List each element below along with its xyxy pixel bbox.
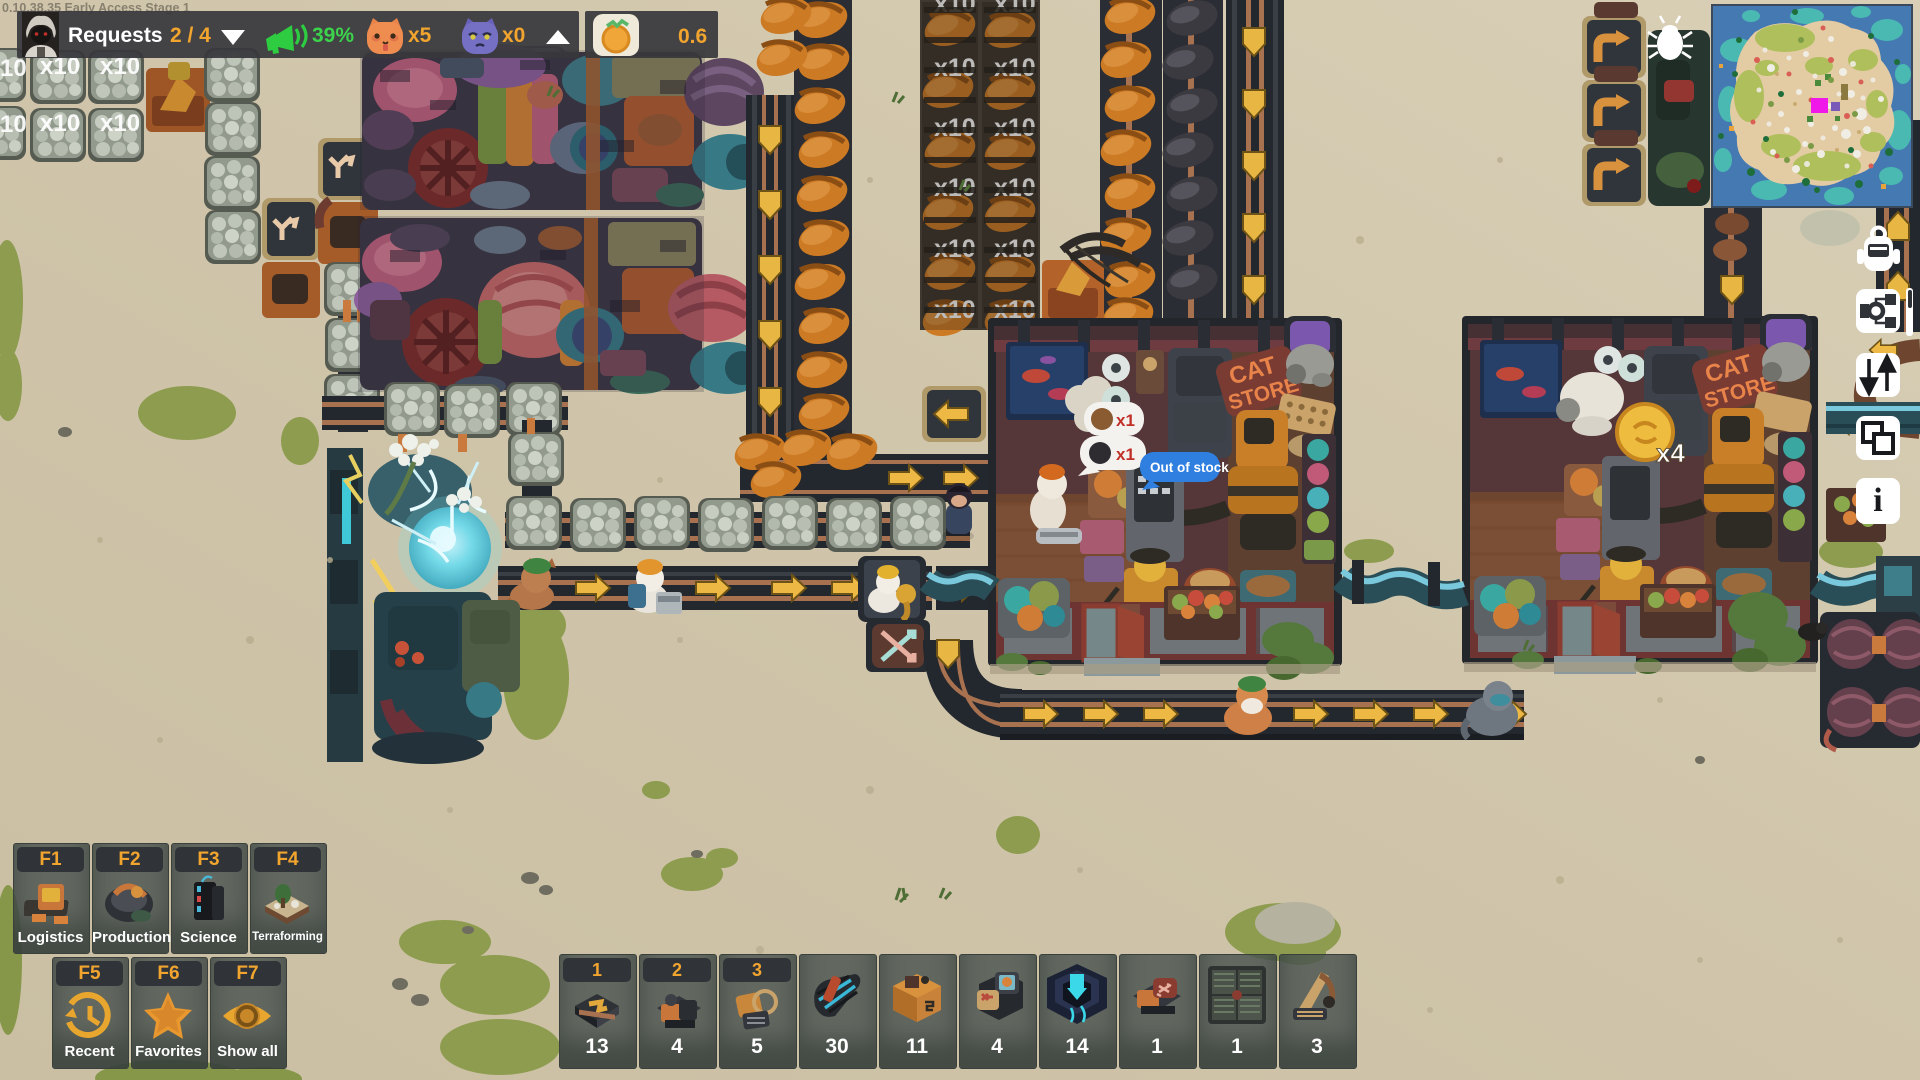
svg-text:Out of stock: Out of stock — [1150, 460, 1229, 475]
svg-text:x10: x10 — [100, 110, 140, 137]
svg-text:x1: x1 — [1116, 411, 1135, 430]
svg-text:x10: x10 — [40, 110, 80, 137]
svg-text:x4: x4 — [1656, 438, 1685, 468]
svg-text:x1: x1 — [1116, 445, 1135, 464]
svg-text:10: 10 — [0, 111, 27, 138]
svg-text:10: 10 — [0, 55, 27, 82]
